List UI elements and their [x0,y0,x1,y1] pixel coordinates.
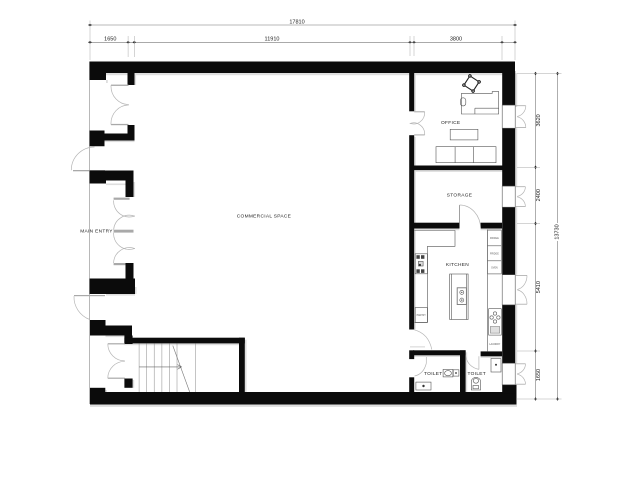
svg-text:3620: 3620 [536,114,542,126]
svg-text:11910: 11910 [265,37,280,43]
svg-text:PANTRY: PANTRY [417,314,427,317]
svg-text:2400: 2400 [536,189,542,201]
svg-text:OFFICE: OFFICE [441,120,460,126]
svg-text:OVEN: OVEN [491,267,498,269]
svg-text:3800: 3800 [450,37,462,43]
svg-text:TOILET: TOILET [468,371,487,377]
svg-text:COMMERCIAL SPACE: COMMERCIAL SPACE [237,213,291,219]
svg-text:MAIN ENTRY: MAIN ENTRY [80,228,113,234]
svg-text:FRIDGE: FRIDGE [490,238,499,240]
svg-text:KITCHEN: KITCHEN [446,262,469,268]
svg-text:1650: 1650 [536,369,542,381]
svg-text:5410: 5410 [536,281,542,293]
svg-text:17810: 17810 [289,19,304,25]
svg-text:STORAGE: STORAGE [447,193,472,199]
svg-text:1650: 1650 [104,37,116,43]
svg-text:TOILET: TOILET [424,371,443,377]
svg-text:LAUNDRY: LAUNDRY [489,343,500,346]
svg-text:13730: 13730 [555,224,561,239]
svg-text:FRIDGE: FRIDGE [490,253,499,255]
